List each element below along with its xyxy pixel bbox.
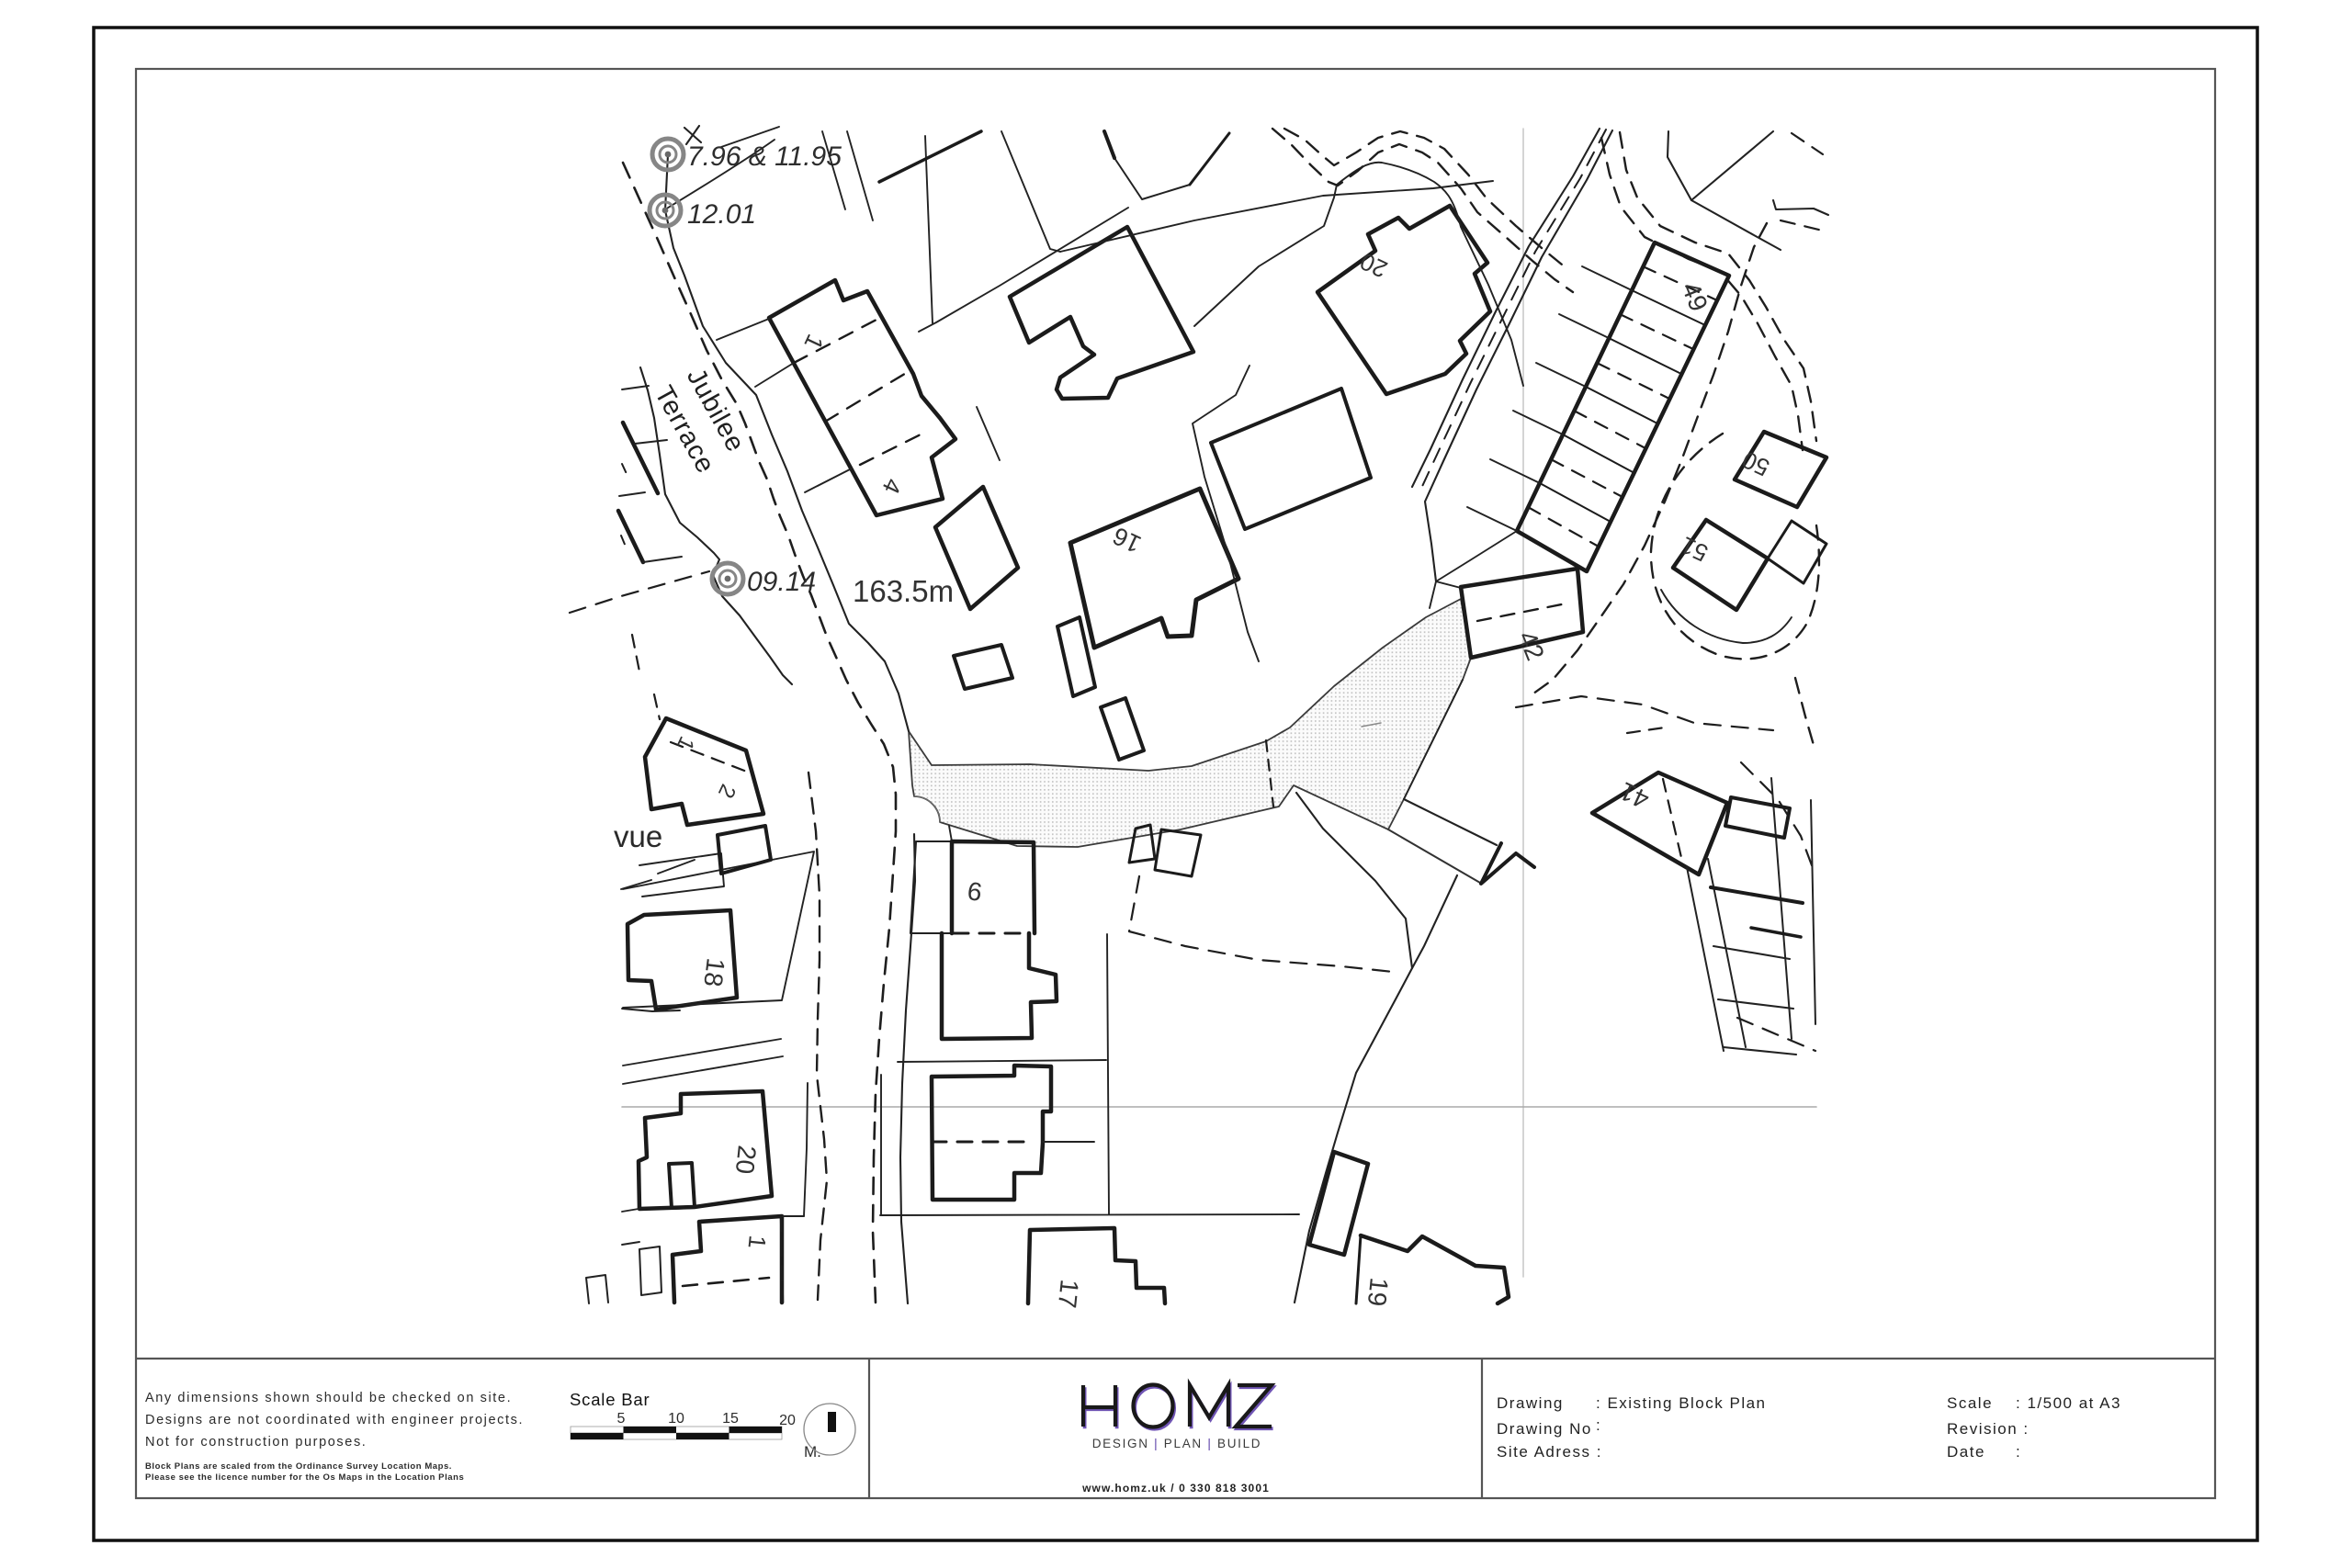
svg-text:09.14: 09.14	[747, 567, 816, 597]
svg-text:18: 18	[698, 956, 730, 988]
svg-text:M.: M.	[804, 1443, 821, 1461]
svg-text:7.96 & 11.95: 7.96 & 11.95	[687, 141, 842, 172]
svg-text:20: 20	[779, 1413, 796, 1428]
svg-text:19: 19	[1363, 1276, 1394, 1307]
svg-text:Please see the licence number: Please see the licence number for the Os…	[145, 1472, 464, 1483]
svg-text::: :	[2016, 1443, 2021, 1461]
svg-text:Scale: Scale	[1947, 1394, 1993, 1412]
svg-text:12.01: 12.01	[687, 199, 756, 230]
svg-text:: Existing Block Plan: : Existing Block Plan	[1596, 1394, 1767, 1412]
svg-text:15: 15	[722, 1411, 739, 1427]
svg-text:Revision :: Revision :	[1947, 1420, 2030, 1438]
svg-text:Block Plans are scaled from th: Block Plans are scaled from the Ordinanc…	[145, 1461, 452, 1472]
svg-text:Scale Bar: Scale Bar	[570, 1390, 650, 1409]
svg-text:Not for construction purposes.: Not for construction purposes.	[145, 1435, 367, 1450]
svg-text:DESIGN | PLAN | BUILD: DESIGN | PLAN | BUILD	[1092, 1437, 1262, 1450]
svg-text:5: 5	[617, 1411, 626, 1427]
svg-text:Drawing: Drawing	[1497, 1394, 1564, 1412]
svg-text:www.homz.uk / 0 330 818 3001: www.homz.uk / 0 330 818 3001	[1081, 1482, 1270, 1495]
svg-text:: 1/500 at A3: : 1/500 at A3	[2016, 1394, 2121, 1412]
svg-text:Drawing No: Drawing No	[1497, 1420, 1592, 1438]
svg-text:Any dimensions shown should be: Any dimensions shown should be checked o…	[145, 1391, 512, 1405]
svg-text:Designs are not coordinated wi: Designs are not coordinated with enginee…	[145, 1413, 524, 1427]
svg-text:10: 10	[668, 1411, 684, 1427]
svg-text:vue: vue	[614, 819, 662, 853]
svg-text::: :	[1596, 1416, 1601, 1434]
svg-text:163.5m: 163.5m	[853, 574, 954, 608]
svg-text:Site Adress :: Site Adress :	[1497, 1443, 1602, 1461]
svg-text:17: 17	[1053, 1278, 1084, 1309]
svg-text:20: 20	[730, 1144, 762, 1175]
svg-text:Date: Date	[1947, 1443, 1985, 1461]
